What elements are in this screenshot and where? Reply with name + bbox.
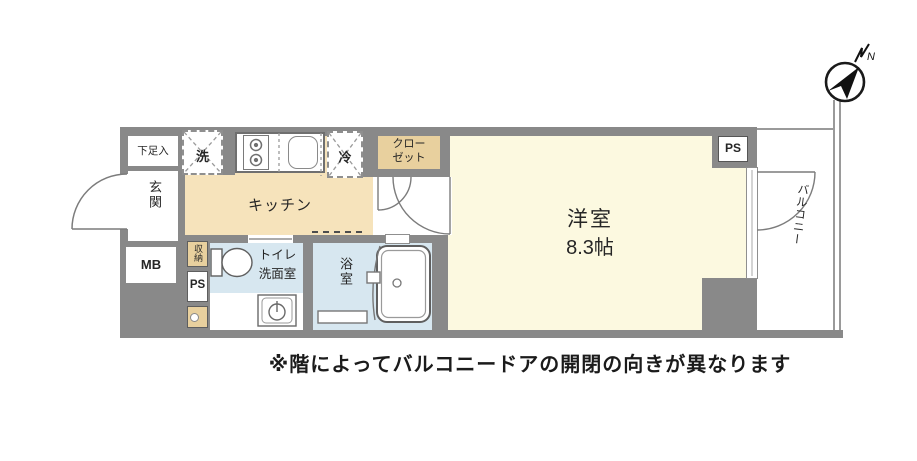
pipe-space-left-label: PS [187, 279, 208, 291]
entrance-door-swing [72, 174, 127, 229]
closet-label-line1: クロー [378, 138, 440, 152]
entrance-label: 玄関 [145, 180, 164, 228]
compass-icon: N [826, 44, 875, 101]
toilet-label-line1: トイレ [235, 246, 320, 265]
closet-label: クロー ゼット [378, 138, 440, 166]
floorplan-canvas: N 下足入 玄関 MB 洗 キッチン 冷 クロー ゼット PS 収納 PS トイ… [0, 0, 917, 461]
stove-burners-icon [251, 140, 262, 166]
fixtures-overlay: N [0, 0, 917, 461]
fridge-label: 冷 [327, 147, 363, 166]
room-door-swing [378, 177, 450, 234]
bathtub-icon [377, 246, 430, 322]
washer-label: 洗 [182, 146, 223, 165]
washbasin-icon [258, 295, 296, 326]
storage-label: 収納 [192, 244, 205, 266]
closet-label-line2: ゼット [378, 152, 440, 166]
meter-box-label: MB [126, 257, 176, 272]
toilet-label-line2: 洗面室 [235, 265, 320, 284]
bath-label: 浴室 [336, 257, 355, 303]
kitchen-label: キッチン [228, 194, 332, 215]
western-room-label: 洋室 [490, 203, 690, 233]
shoe-box-label: 下足入 [128, 143, 178, 158]
pipe-space-top-label: PS [718, 141, 748, 155]
floor-note: ※階によってバルコニードアの開閉の向きが異なります [100, 348, 917, 377]
compass-north-label: N [867, 51, 875, 63]
toilet-washroom-label: トイレ 洗面室 [235, 246, 320, 285]
western-room-size-label: 8.3帖 [490, 231, 690, 260]
